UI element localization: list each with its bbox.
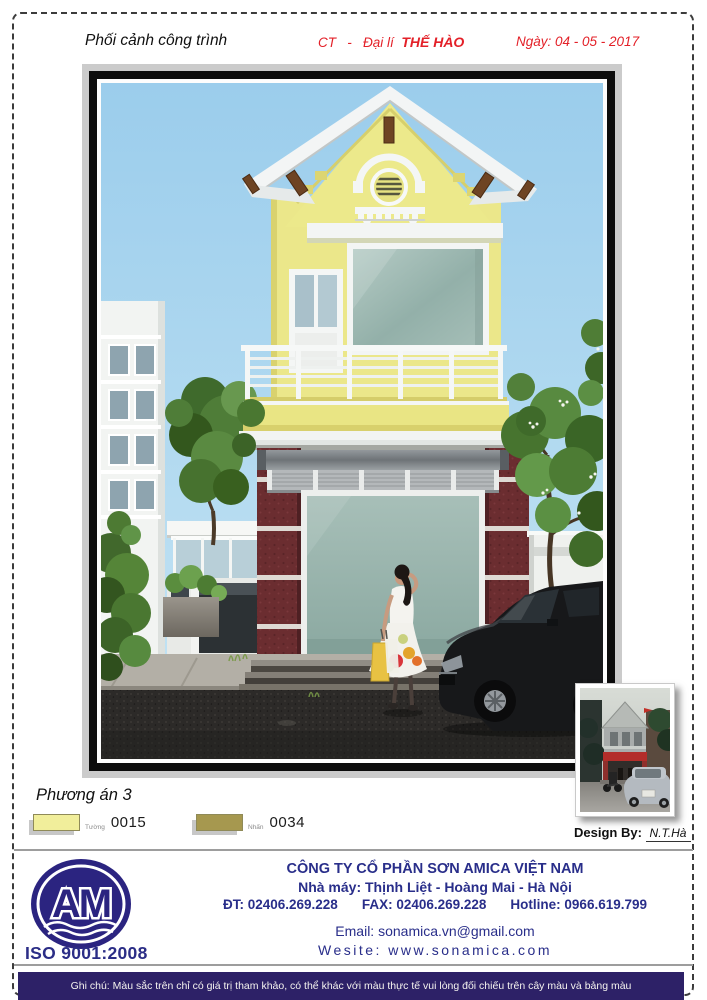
project-code: CT (318, 35, 336, 50)
foliage-overlap-left (237, 399, 265, 427)
company-website: Wesite: www.sonamica.com (200, 941, 670, 960)
am-logo-icon: AM AM (28, 857, 134, 951)
roller-shutter-box (257, 450, 509, 470)
design-by-label: Design By: (574, 825, 642, 840)
note-bar: Ghi chú: Màu sắc trên chỉ có giá trị tha… (18, 972, 684, 1000)
note-text: Ghi chú: Màu sắc trên chỉ có giá trị tha… (71, 980, 632, 992)
accent-color-swatch: Nhấn 0034 (196, 814, 305, 831)
rendering-frame-black (89, 71, 615, 771)
company-contact-line: ĐT: 02406.269.228 FAX: 02406.269.228 Hot… (200, 896, 670, 914)
company-email: Email: sonamica.vn@gmail.com (200, 922, 670, 941)
designer-name: N.T.Hà (646, 826, 692, 842)
rendering-frame-white (97, 79, 607, 763)
swatch-code: 0034 (270, 814, 305, 831)
company-factory: Nhà máy: Thịnh Liệt - Hoàng Mai - Hà Nội (200, 878, 670, 896)
wall-color-chip (33, 814, 80, 831)
presentation-sheet: Phối cảnh công trình CT - Đại lí THẾ HÀO… (0, 0, 707, 1000)
upper-window (347, 243, 489, 355)
planter-box (163, 597, 219, 637)
balcony-band (239, 401, 513, 450)
date-label: Ngày: 04 - 05 - 2017 (516, 34, 639, 49)
accent-color-chip (196, 814, 243, 831)
dealer-name: THẾ HÀO (401, 34, 464, 50)
swatch-name: Tường (85, 824, 105, 831)
company-phone: ĐT: 02406.269.228 (223, 896, 338, 914)
company-info: CÔNG TY CỔ PHẦN SƠN AMICA VIỆT NAM Nhà m… (200, 860, 670, 960)
wall-color-swatch: Tường 0015 (33, 814, 146, 831)
company-fax: FAX: 02406.269.228 (362, 896, 487, 914)
rendering-frame (82, 64, 622, 778)
iso-label: ISO 9001:2008 (25, 943, 148, 964)
svg-text:AM: AM (52, 882, 110, 926)
divider-bottom (14, 964, 693, 966)
company-name: CÔNG TY CỔ PHẦN SƠN AMICA VIỆT NAM (200, 860, 670, 878)
yellow-house (239, 86, 537, 666)
house-rendering-image (101, 83, 603, 759)
separator: - (347, 35, 352, 50)
company-logo: AM AM (28, 857, 134, 956)
existing-house-photo (575, 683, 675, 817)
dealer-label: Đại lí (363, 35, 394, 50)
swatch-name: Nhấn (248, 824, 264, 831)
swatch-code: 0015 (111, 814, 146, 831)
divider-top (14, 849, 693, 851)
design-by: Design By: N.T.Hà (574, 825, 691, 840)
page-title: Phối cảnh công trình (85, 32, 227, 50)
shutter-grille (267, 470, 499, 490)
plan-title: Phương án 3 (36, 786, 132, 805)
project-dealer-line: CT - Đại lí THẾ HÀO (318, 34, 464, 50)
company-hotline: Hotline: 0966.619.799 (510, 896, 647, 914)
